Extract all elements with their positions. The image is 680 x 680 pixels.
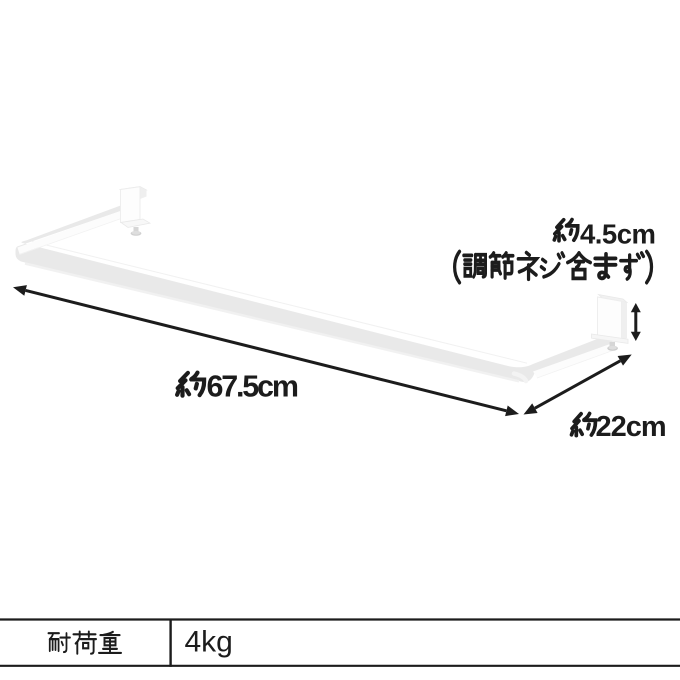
svg-text:4.5cm: 4.5cm [580, 219, 655, 250]
svg-text:22cm: 22cm [596, 411, 666, 443]
svg-text:4kg: 4kg [185, 626, 233, 659]
svg-text:67.5cm: 67.5cm [207, 370, 298, 404]
